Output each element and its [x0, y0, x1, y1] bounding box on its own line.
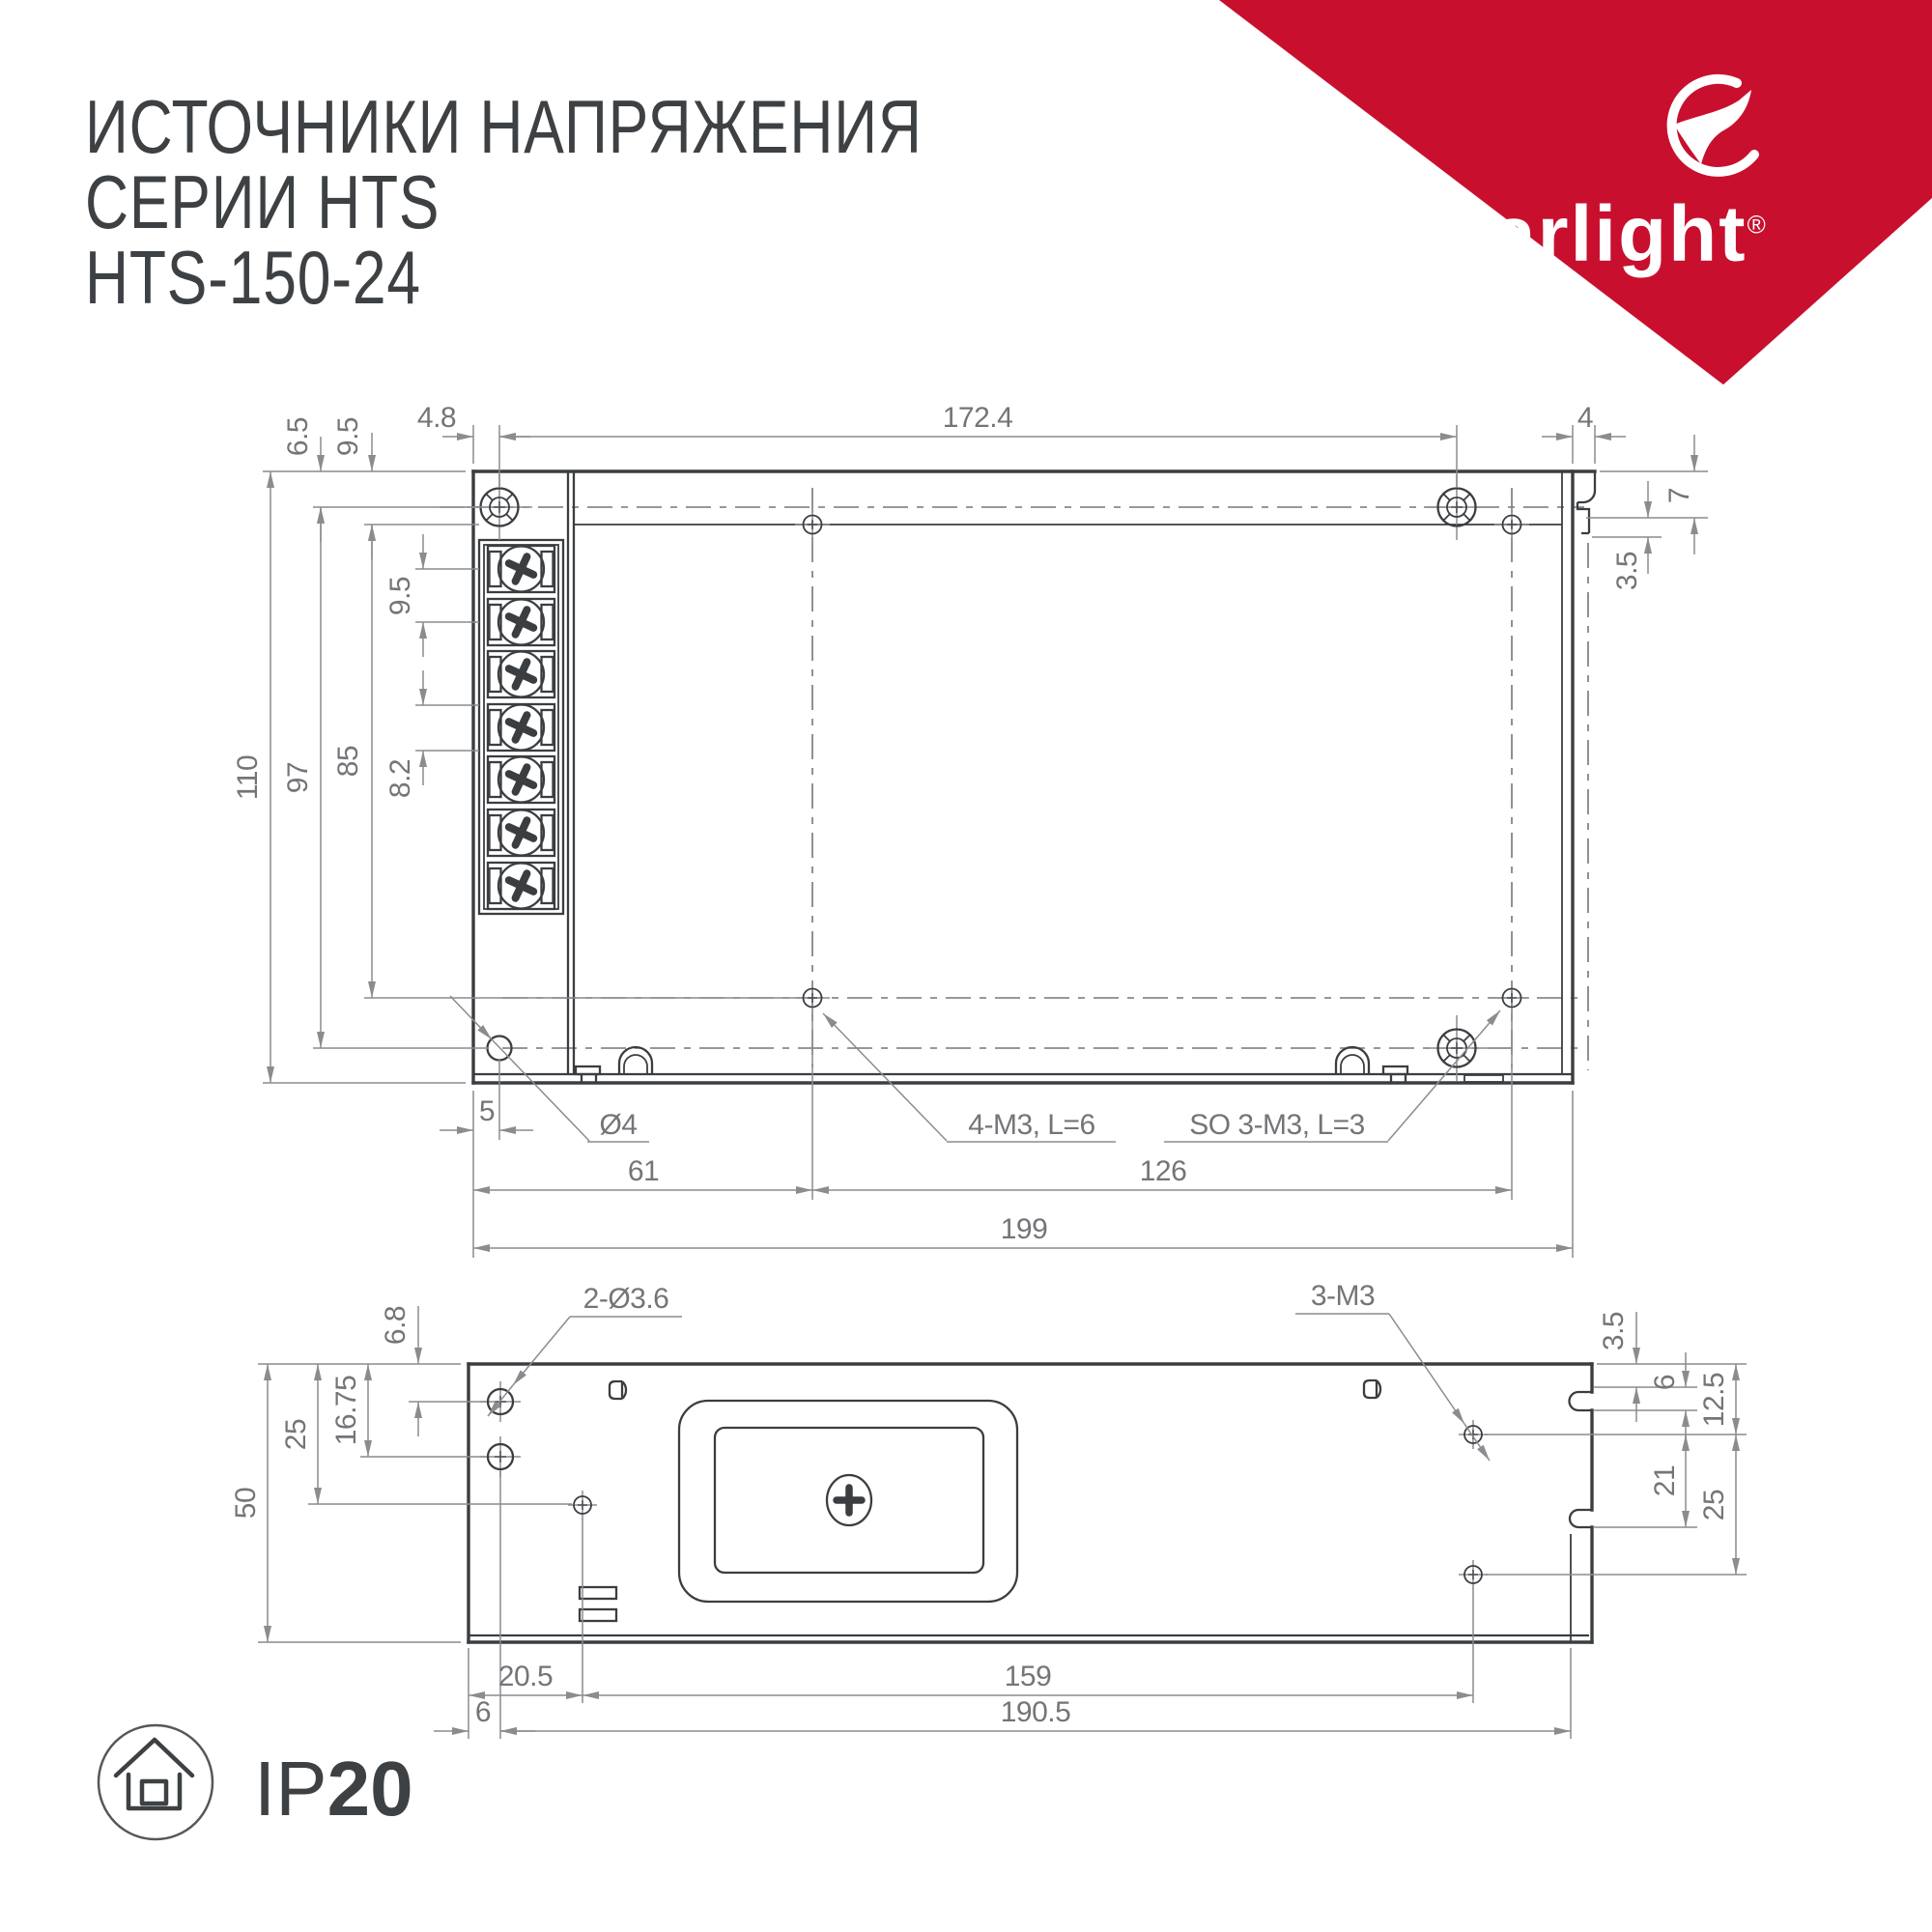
svg-text:6: 6: [475, 1696, 491, 1728]
ip-badge-icon: [99, 1725, 213, 1839]
terminal-block: [488, 546, 554, 909]
svg-text:110: 110: [232, 755, 264, 800]
svg-text:6.5: 6.5: [282, 417, 314, 456]
svg-text:20.5: 20.5: [498, 1661, 553, 1692]
svg-text:2-Ø3.6: 2-Ø3.6: [583, 1283, 669, 1315]
svg-text:50: 50: [230, 1488, 262, 1519]
svg-text:4.8: 4.8: [417, 402, 456, 434]
svg-text:3-M3: 3-M3: [1311, 1280, 1375, 1312]
svg-text:9.5: 9.5: [332, 417, 364, 456]
svg-text:4: 4: [1577, 402, 1593, 434]
svg-text:190.5: 190.5: [1001, 1696, 1071, 1728]
label-plate: [679, 1401, 1017, 1602]
svg-text:6: 6: [1649, 1375, 1681, 1390]
svg-text:9.5: 9.5: [384, 577, 416, 615]
svg-text:172.4: 172.4: [943, 402, 1013, 434]
svg-text:7: 7: [1663, 488, 1695, 503]
house-icon: [116, 1740, 192, 1808]
top-view-dimensions: 4.8 172.4 4: [232, 402, 1708, 1258]
svg-text:4-M3, L=6: 4-M3, L=6: [968, 1109, 1094, 1141]
svg-text:61: 61: [628, 1155, 659, 1187]
svg-text:5: 5: [479, 1095, 495, 1127]
svg-text:6.8: 6.8: [380, 1306, 412, 1345]
svg-text:Ø4: Ø4: [599, 1109, 637, 1141]
svg-text:199: 199: [1001, 1213, 1048, 1245]
svg-text:16.75: 16.75: [330, 1376, 362, 1446]
svg-text:159: 159: [1005, 1661, 1052, 1692]
svg-text:3.5: 3.5: [1598, 1312, 1630, 1350]
svg-text:3.5: 3.5: [1611, 552, 1643, 590]
svg-text:SO 3-M3, L=3: SO 3-M3, L=3: [1189, 1109, 1365, 1141]
top-view-drawing: 4.8 172.4 4: [232, 402, 1708, 1258]
side-view-dimensions: 50 25 16.75 6.8 2-Ø3.6 3-M3: [230, 1280, 1747, 1739]
mounting-clips: [576, 1047, 1503, 1083]
brand-swoosh-icon: [1672, 79, 1754, 172]
svg-text:126: 126: [1140, 1155, 1187, 1187]
svg-text:25: 25: [1698, 1490, 1730, 1520]
svg-text:25: 25: [280, 1419, 312, 1450]
svg-text:12.5: 12.5: [1698, 1373, 1730, 1427]
spec-sheet-page: ИСТОЧНИКИ НАПРЯЖЕНИЯ СЕРИИ HTS HTS-150-2…: [0, 0, 1932, 1932]
svg-text:21: 21: [1649, 1465, 1681, 1496]
technical-drawing-canvas: 4.8 172.4 4: [0, 0, 1932, 1932]
svg-text:85: 85: [332, 746, 364, 777]
svg-text:8.2: 8.2: [384, 759, 416, 798]
svg-text:97: 97: [282, 762, 314, 793]
side-view-drawing: 50 25 16.75 6.8 2-Ø3.6 3-M3: [230, 1280, 1747, 1739]
